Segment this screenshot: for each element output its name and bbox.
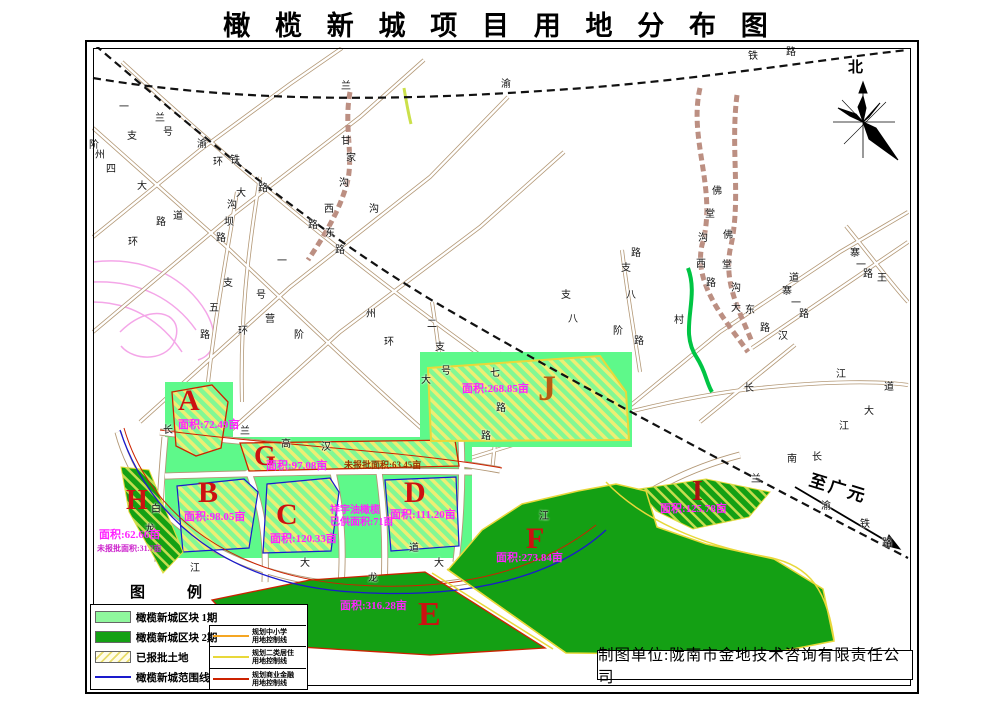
attribution-box: 制图单位:陇南市金地技术咨询有限责任公司 (597, 650, 913, 680)
legend-item-residential-line: 规划二类居住用地控制线 (210, 647, 306, 668)
legend-box: 橄榄新城区块 1期橄榄新城区块 2期已报批土地橄榄新城范围线 规划中小学用地控制… (90, 604, 308, 690)
phase2-fill-swatch (95, 631, 131, 643)
legend: 图 例 橄榄新城区块 1期橄榄新城区块 2期已报批土地橄榄新城范围线 规划中小学… (90, 581, 308, 690)
legend-label: 橄榄新城区块 2期 (136, 630, 217, 645)
legend-label: 规划中小学用地控制线 (252, 628, 287, 644)
legend-label: 已报批土地 (136, 650, 189, 665)
phase1-fill-swatch (95, 611, 131, 623)
highway-interchange (93, 261, 214, 360)
legend-item-school-line: 规划中小学用地控制线 (210, 626, 306, 647)
legend-label: 橄榄新城区块 1期 (136, 610, 217, 625)
map-content (93, 45, 908, 655)
compass-rose (833, 82, 898, 160)
legend-label: 规划商业金融用地控制线 (252, 671, 294, 687)
boundary-line-swatch (95, 676, 131, 678)
north-label: 北 (848, 56, 863, 77)
commercial-line-swatch (213, 678, 249, 680)
legend-item-approved-hatch: 已报批土地 (91, 647, 209, 667)
legend-right-column: 规划中小学用地控制线规划二类居住用地控制线规划商业金融用地控制线 (209, 625, 306, 689)
map-page: 橄 榄 新 城 项 目 用 地 分 布 图 (0, 0, 1000, 706)
legend-label: 橄榄新城范围线 (136, 670, 210, 685)
legend-item-commercial-line: 规划商业金融用地控制线 (210, 669, 306, 689)
legend-label: 规划二类居住用地控制线 (252, 649, 294, 665)
legend-item-boundary-line: 橄榄新城范围线 (91, 667, 209, 687)
legend-title: 图 例 (130, 581, 206, 602)
legend-item-phase2-fill: 橄榄新城区块 2期 (91, 627, 209, 647)
legend-left-column: 橄榄新城区块 1期橄榄新城区块 2期已报批土地橄榄新城范围线 (91, 605, 209, 689)
legend-item-phase1-fill: 橄榄新城区块 1期 (91, 607, 209, 627)
school-line-swatch (213, 635, 249, 637)
approved-hatch-swatch (95, 651, 131, 663)
stream-small (404, 88, 411, 124)
residential-line-swatch (213, 656, 249, 658)
